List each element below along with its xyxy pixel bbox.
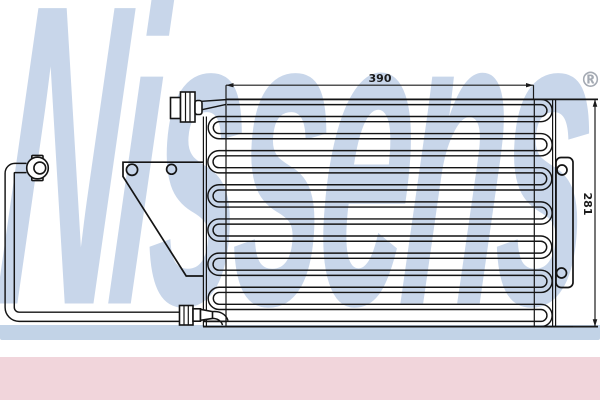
condenser-catalog-image: Nissens ® — [0, 0, 600, 400]
pipe-union-fitting — [27, 155, 49, 180]
receiver-pipe — [5, 163, 180, 321]
height-dimension: 281 — [573, 99, 598, 326]
height-dimension-label: 281 — [581, 193, 594, 216]
condenser-technical-drawing: 390 281 — [0, 0, 600, 400]
left-side-channel — [203, 117, 206, 327]
width-dimension: 390 — [226, 72, 534, 99]
width-dimension-label: 390 — [369, 72, 392, 85]
right-side-rail — [553, 99, 556, 326]
right-mounting-bracket — [556, 158, 573, 288]
left-mounting-bracket — [123, 162, 203, 276]
serpentine-coil — [208, 99, 552, 326]
inlet-fitting — [171, 92, 227, 122]
